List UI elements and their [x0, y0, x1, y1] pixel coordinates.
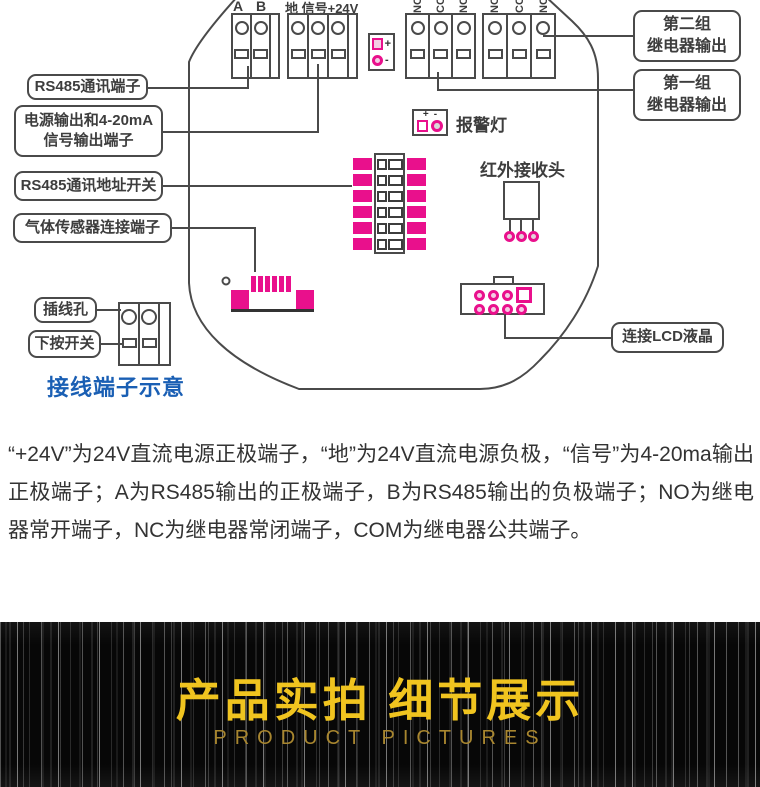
dip-switch-row: [377, 239, 403, 250]
terminal-screw-hole: [488, 21, 502, 35]
terminal-column: [309, 15, 329, 77]
dip-switch-row: [377, 159, 403, 170]
terminal-column: [407, 15, 430, 77]
plus-sign: +: [385, 38, 391, 50]
terminal-screw-hole: [331, 21, 345, 35]
lcd-pin: [502, 304, 513, 315]
callout-text: 第二组: [663, 14, 711, 36]
callout-power-output: 电源输出和4-20mA 信号输出端子: [14, 105, 163, 157]
terminal-column: [453, 15, 474, 77]
terminal-screw-hole: [291, 21, 305, 35]
gas-connector-hole: [223, 278, 230, 285]
callout-lcd: 连接LCD液晶: [611, 322, 724, 353]
banner-title: 产品实拍 细节展示: [0, 664, 760, 729]
callout-wire-hole: 插线孔: [34, 297, 97, 323]
relay-terminal-label: COM: [435, 0, 447, 13]
alarm-lamp-label: 报警灯: [456, 111, 507, 136]
dip-pad: [407, 158, 426, 170]
dip-switch-row: [377, 223, 403, 234]
dip-pad: [407, 174, 426, 186]
relay-terminal-label: NC: [458, 0, 470, 13]
diagram-caption: 接线端子示意: [47, 370, 185, 402]
terminal-screw-hole: [536, 21, 550, 35]
callout-text: RS485通讯端子: [35, 77, 141, 97]
relay-terminal-label: COM: [514, 0, 526, 13]
dip-switch-row: [377, 191, 403, 202]
callout-text: 继电器输出: [647, 95, 727, 117]
lcd-pin-square: [516, 287, 532, 303]
dip-pad: [353, 174, 372, 186]
dip-pad: [407, 222, 426, 234]
lcd-pin: [516, 304, 527, 315]
dip-switch-pads-left: [353, 158, 372, 250]
plus-sign: +: [423, 111, 429, 119]
terminal-column: [233, 15, 252, 77]
callout-gas-sensor: 气体传感器连接端子: [13, 213, 172, 243]
product-page: { "colors": { "accent_magenta": "#e9108c…: [0, 0, 760, 787]
terminal-column: [349, 15, 356, 77]
callout-relay-group2: 第二组 继电器输出: [633, 10, 741, 62]
terminal-slot: [536, 49, 551, 59]
callout-text: 气体传感器连接端子: [25, 218, 160, 238]
terminal-column: [120, 304, 140, 364]
terminal-screw-hole: [254, 21, 268, 35]
dip-pad: [407, 238, 426, 250]
gas-connector-end-block: [231, 290, 249, 311]
minus-terminal-icon: [372, 55, 383, 66]
callout-address-switch: RS485通讯地址开关: [14, 171, 163, 201]
terminal-column: [329, 15, 349, 77]
callout-push-switch: 下按开关: [28, 330, 101, 358]
relay-terminal-label: NO: [489, 0, 501, 13]
lcd-pin: [488, 304, 499, 315]
callout-text: 电源输出和4-20mA: [24, 111, 153, 131]
minus-sign: -: [434, 111, 437, 119]
terminal-column: [289, 15, 309, 77]
callout-text: 信号输出端子: [43, 131, 133, 151]
callout-text: 下按开关: [34, 334, 94, 354]
terminal-slot: [331, 49, 346, 59]
banner-subtitle: PRODUCT PICTURES: [0, 727, 760, 750]
dip-pad: [407, 190, 426, 202]
terminal-slot: [410, 49, 425, 59]
dip-pad: [407, 206, 426, 218]
alarm-lamp-icon: + -: [412, 109, 448, 136]
terminal-column: [271, 15, 278, 77]
terminal-label-a: A: [233, 0, 243, 14]
gas-connector-base: [231, 309, 314, 312]
terminal-description-paragraph: “+24V”为24V直流电源正极端子，“地”为24V直流电源负极，“信号”为4-…: [8, 436, 754, 550]
callout-rs485: RS485通讯端子: [27, 74, 148, 100]
ir-receiver-icon: [503, 181, 540, 220]
dip-switch-pads-right: [407, 158, 426, 250]
terminal-slot: [433, 49, 448, 59]
dip-pad: [353, 222, 372, 234]
terminal-label-b: B: [256, 0, 266, 14]
lcd-pin: [474, 290, 485, 301]
lcd-pin: [502, 290, 513, 301]
terminal-slot: [311, 49, 326, 59]
lamp-round-contact: [431, 120, 443, 132]
ir-receiver-label: 红外接收头: [480, 156, 565, 181]
terminal-slot: [456, 49, 471, 59]
callout-text: 连接LCD液晶: [622, 327, 713, 347]
terminal-slot: [253, 49, 268, 59]
terminal-slot: [512, 49, 527, 59]
terminal-screw-hole: [457, 21, 471, 35]
relay-terminal-block-1: [405, 13, 476, 79]
lamp-square-contact: [417, 120, 428, 132]
terminal-column: [140, 304, 160, 364]
alarm-output-connector: + -: [368, 33, 395, 71]
wire-hole-circle: [121, 309, 137, 325]
wiring-diagram: NO COM NC NO COM NC A B 地 信号+24V: [0, 0, 760, 420]
ir-leg-contact: [528, 231, 539, 242]
terminal-screw-hole: [311, 21, 325, 35]
dip-pad: [353, 238, 372, 250]
callout-text: RS485通讯地址开关: [21, 176, 157, 196]
terminal-column: [508, 15, 532, 77]
terminal-slot: [488, 49, 503, 59]
terminal-screw-hole: [512, 21, 526, 35]
push-switch-rect: [142, 338, 157, 348]
dip-pad: [353, 190, 372, 202]
callout-text: 第一组: [663, 73, 711, 95]
terminal-block-rs485: [231, 13, 280, 79]
terminal-column: [160, 304, 169, 364]
callout-text: 插线孔: [43, 300, 88, 320]
lcd-pin: [488, 290, 499, 301]
dip-switch-row: [377, 207, 403, 218]
terminal-column: [430, 15, 453, 77]
dip-pad: [353, 206, 372, 218]
terminal-column: [532, 15, 554, 77]
wire-hole-circle: [141, 309, 157, 325]
ir-leg-contact: [516, 231, 527, 242]
terminal-screw-hole: [411, 21, 425, 35]
lcd-pin: [474, 304, 485, 315]
dip-switch: [374, 153, 405, 254]
push-switch-rect: [122, 338, 137, 348]
lcd-connector: [460, 283, 545, 315]
dip-pad: [353, 158, 372, 170]
relay-terminal-label: NO: [412, 0, 424, 13]
plus-terminal-icon: [372, 38, 383, 50]
sample-terminal-block: [118, 302, 171, 366]
relay-terminal-label: NC: [538, 0, 550, 13]
gas-connector-end-block: [296, 290, 314, 311]
callout-text: 继电器输出: [647, 36, 727, 58]
ir-leg-contact: [504, 231, 515, 242]
minus-sign: -: [385, 54, 389, 66]
terminal-column: [484, 15, 508, 77]
gas-sensor-connector-pins: [251, 276, 291, 292]
relay-terminal-block-2: [482, 13, 556, 79]
dip-switch-row: [377, 175, 403, 186]
terminal-block-power: [287, 13, 358, 79]
terminal-slot: [291, 49, 306, 59]
terminal-slot: [234, 49, 249, 59]
terminal-column: [252, 15, 271, 77]
callout-relay-group1: 第一组 继电器输出: [633, 69, 741, 121]
terminal-screw-hole: [235, 21, 249, 35]
terminal-screw-hole: [434, 21, 448, 35]
